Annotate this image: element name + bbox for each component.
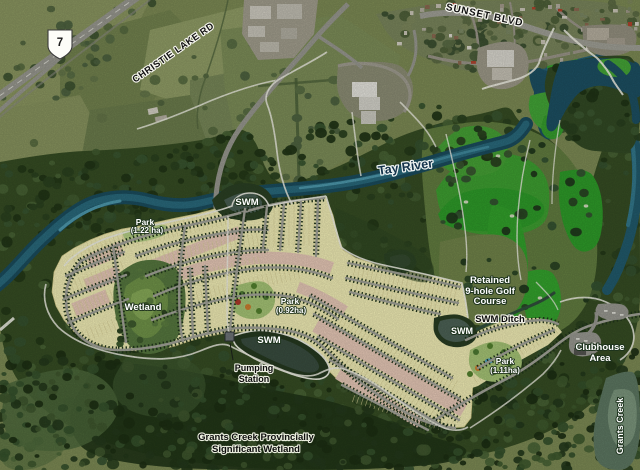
svg-text:7: 7 <box>57 37 63 49</box>
svg-text:(0.92ha): (0.92ha) <box>276 306 307 315</box>
svg-text:Area: Area <box>589 353 611 364</box>
svg-text:Grants Creek Provincially: Grants Creek Provincially <box>198 432 314 443</box>
svg-text:SWM: SWM <box>451 326 473 336</box>
svg-text:Grants Creek: Grants Creek <box>615 397 625 455</box>
svg-text:Pumping: Pumping <box>235 363 274 373</box>
svg-text:Significant Wetland: Significant Wetland <box>212 444 300 455</box>
svg-text:SWM: SWM <box>257 335 280 346</box>
svg-text:Clubhouse: Clubhouse <box>575 342 624 353</box>
svg-text:(1.22 ha): (1.22 ha) <box>131 226 164 235</box>
svg-text:SWM: SWM <box>235 197 258 208</box>
svg-text:(1.11ha): (1.11ha) <box>490 366 520 375</box>
svg-text:Wetland: Wetland <box>125 302 162 313</box>
svg-text:Retained: Retained <box>470 275 510 286</box>
svg-text:SWM Ditch: SWM Ditch <box>475 314 525 325</box>
svg-text:Park: Park <box>496 356 515 366</box>
svg-text:Station: Station <box>239 374 270 384</box>
svg-text:Course: Course <box>474 296 507 307</box>
svg-text:Park: Park <box>281 296 300 306</box>
